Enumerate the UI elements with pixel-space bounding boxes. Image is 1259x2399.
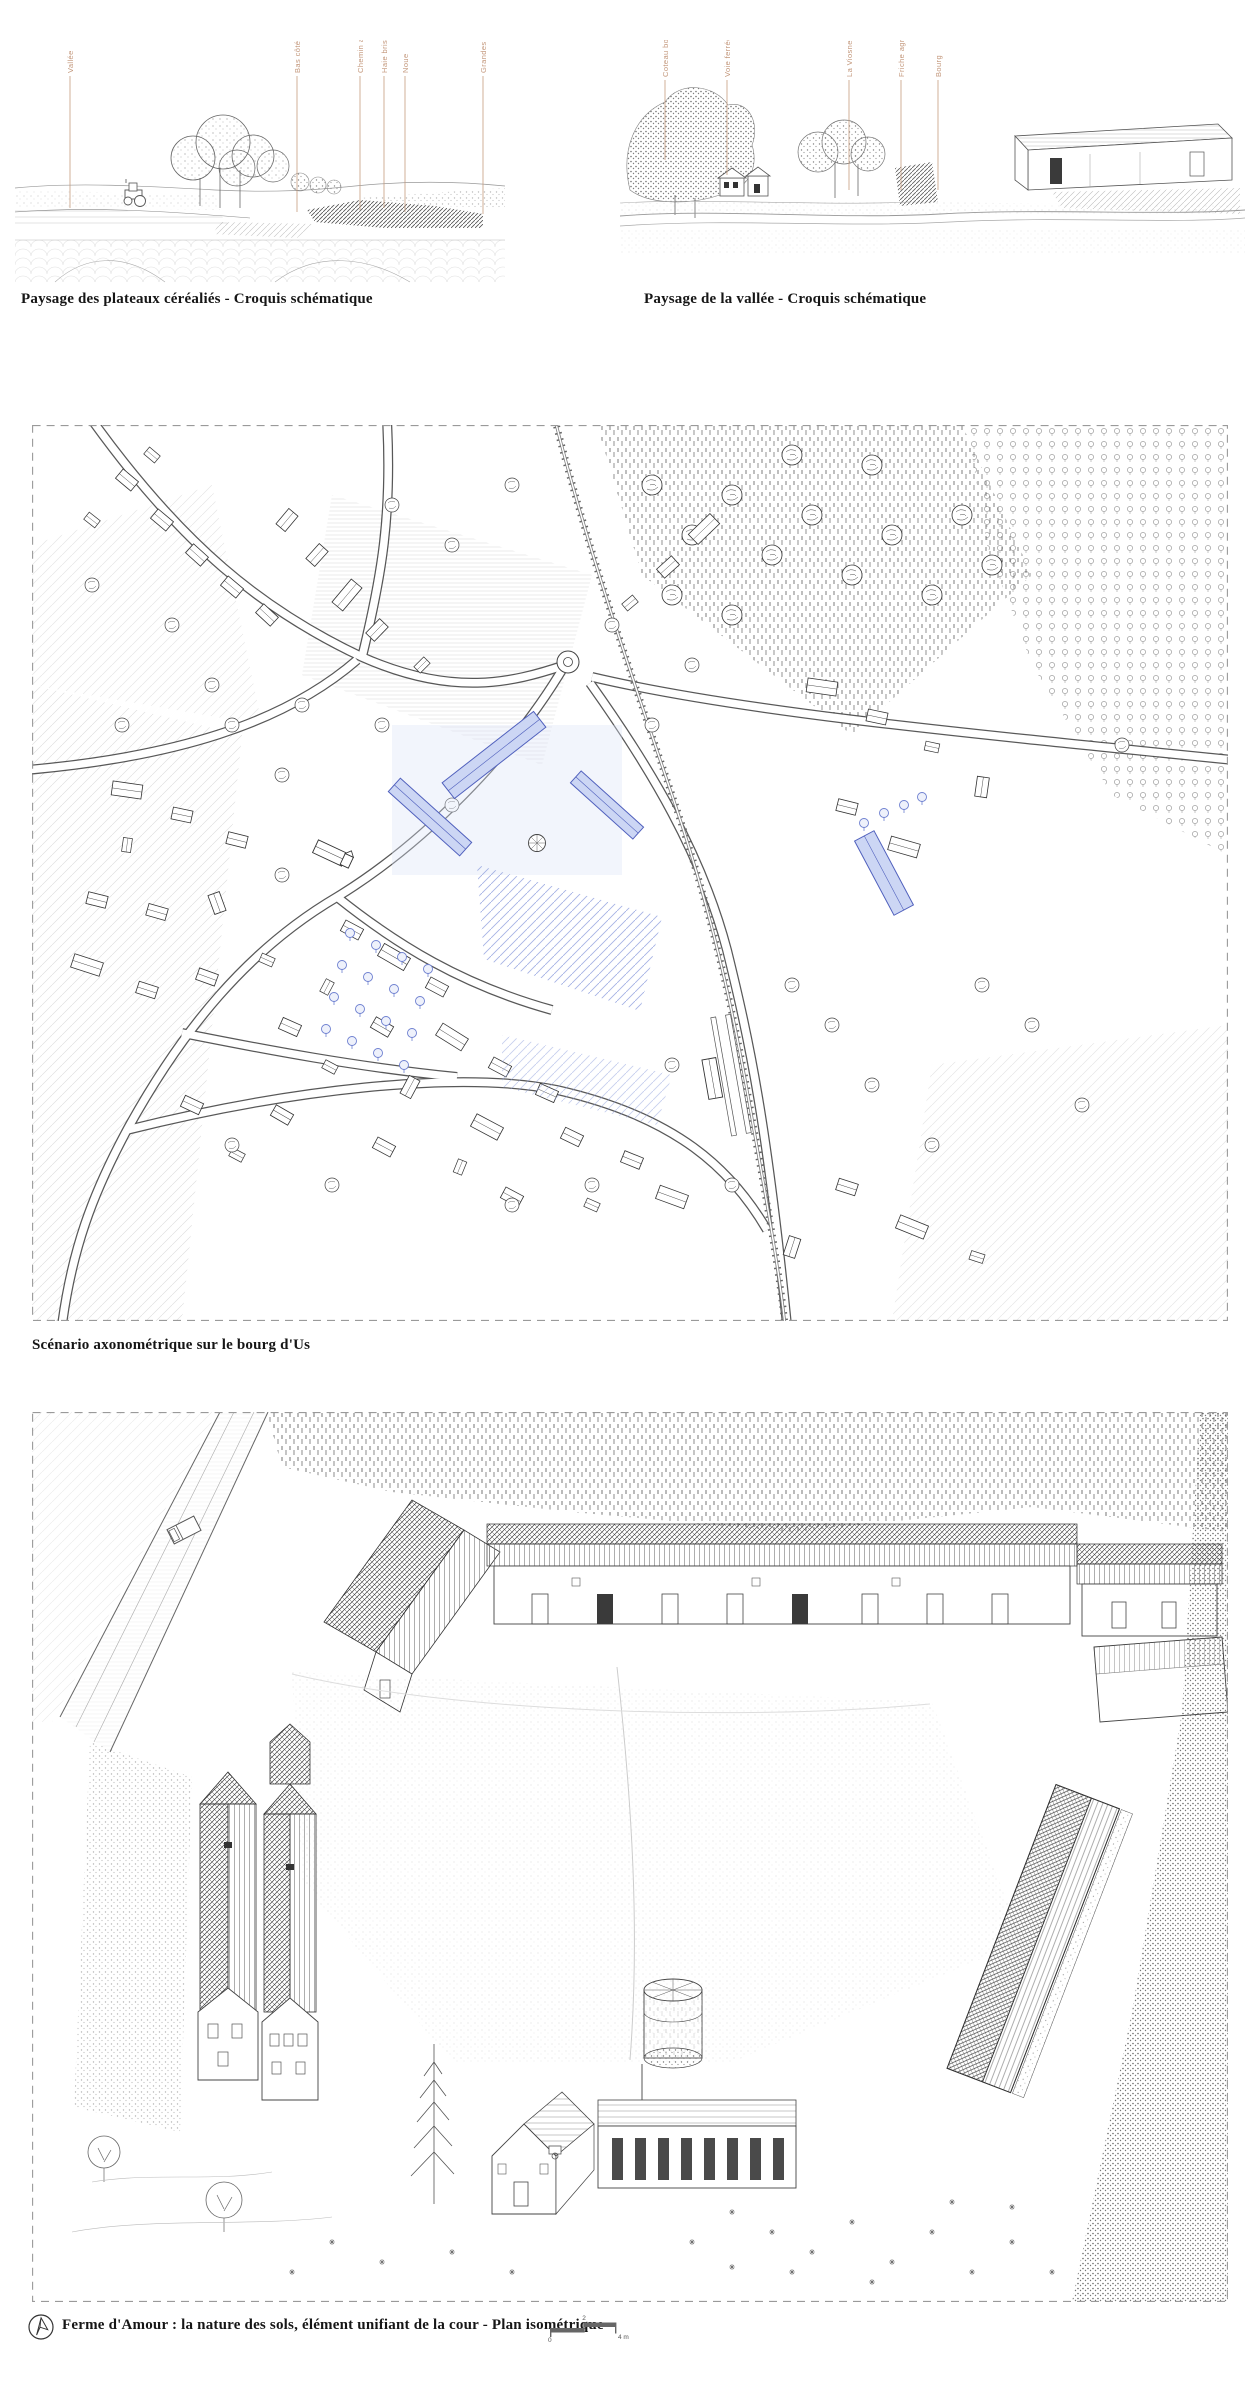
valley-landscape	[620, 88, 1245, 254]
sketch-plateaux: Vallée Bas côté Chemin agricole Haie bri…	[15, 40, 505, 290]
axonometric-drawing	[32, 425, 1228, 1321]
scale-bar: 2 0 4 m	[540, 2312, 630, 2344]
plateau-landscape	[15, 115, 505, 282]
caption-axonometric: Scénario axonométrique sur le bourg d'Us	[32, 1337, 310, 1354]
annotation-label: Haie brise-vent	[380, 40, 389, 73]
sketch-plateaux-drawing: Vallée Bas côté Chemin agricole Haie bri…	[15, 40, 505, 290]
annotation-label: Voie ferrée	[723, 40, 732, 77]
caption-vallee: Paysage de la vallée - Croquis schématiq…	[644, 291, 926, 308]
caption-isometric: Ferme d'Amour : la nature des sols, élém…	[62, 2317, 604, 2334]
annotation-label: Bourg	[934, 55, 943, 77]
annotation-label: Coteau boisé	[661, 40, 670, 77]
caption-plateaux: Paysage des plateaux céréaliés - Croquis…	[21, 291, 373, 308]
isometric-drawing	[32, 1412, 1228, 2302]
tractor-drawing	[124, 179, 146, 207]
annotation-label: Noue	[401, 53, 410, 73]
axonometric-panel	[32, 425, 1228, 1321]
sketch-vallee: Coteau boisé Voie ferrée La Viosne Frich…	[620, 40, 1245, 260]
farm-tower	[529, 835, 546, 852]
isometric-panel	[32, 1412, 1228, 2302]
presentation-sheet: Vallée Bas côté Chemin agricole Haie bri…	[0, 0, 1259, 2399]
annotation-label: Vallée	[66, 50, 75, 73]
north-arrow-icon	[26, 2312, 56, 2342]
scale-zero-label: 0	[548, 2337, 552, 2344]
roundabout	[557, 651, 579, 673]
shed-drawing	[1015, 124, 1232, 190]
tree-cluster	[171, 115, 289, 208]
annotation-label: Bas côté	[293, 41, 302, 73]
scale-end-label: 4 m	[618, 2334, 629, 2341]
garden-texture	[74, 1742, 192, 2132]
footer: Ferme d'Amour : la nature des sols, élém…	[0, 2308, 1259, 2352]
sketch-vallee-drawing: Coteau boisé Voie ferrée La Viosne Frich…	[620, 40, 1245, 260]
scale-mid-label: 2	[582, 2315, 586, 2322]
annotation-label: La Viosne	[845, 40, 854, 77]
annotation-label: Chemin agricole	[356, 40, 365, 73]
annotation-labels: Coteau boisé Voie ferrée La Viosne Frich…	[661, 40, 943, 77]
annotation-labels: Vallée Bas côté Chemin agricole Haie bri…	[66, 40, 488, 73]
annotation-label: Grandes cultures	[479, 40, 488, 73]
annotation-label: Friche agricole	[897, 40, 906, 77]
